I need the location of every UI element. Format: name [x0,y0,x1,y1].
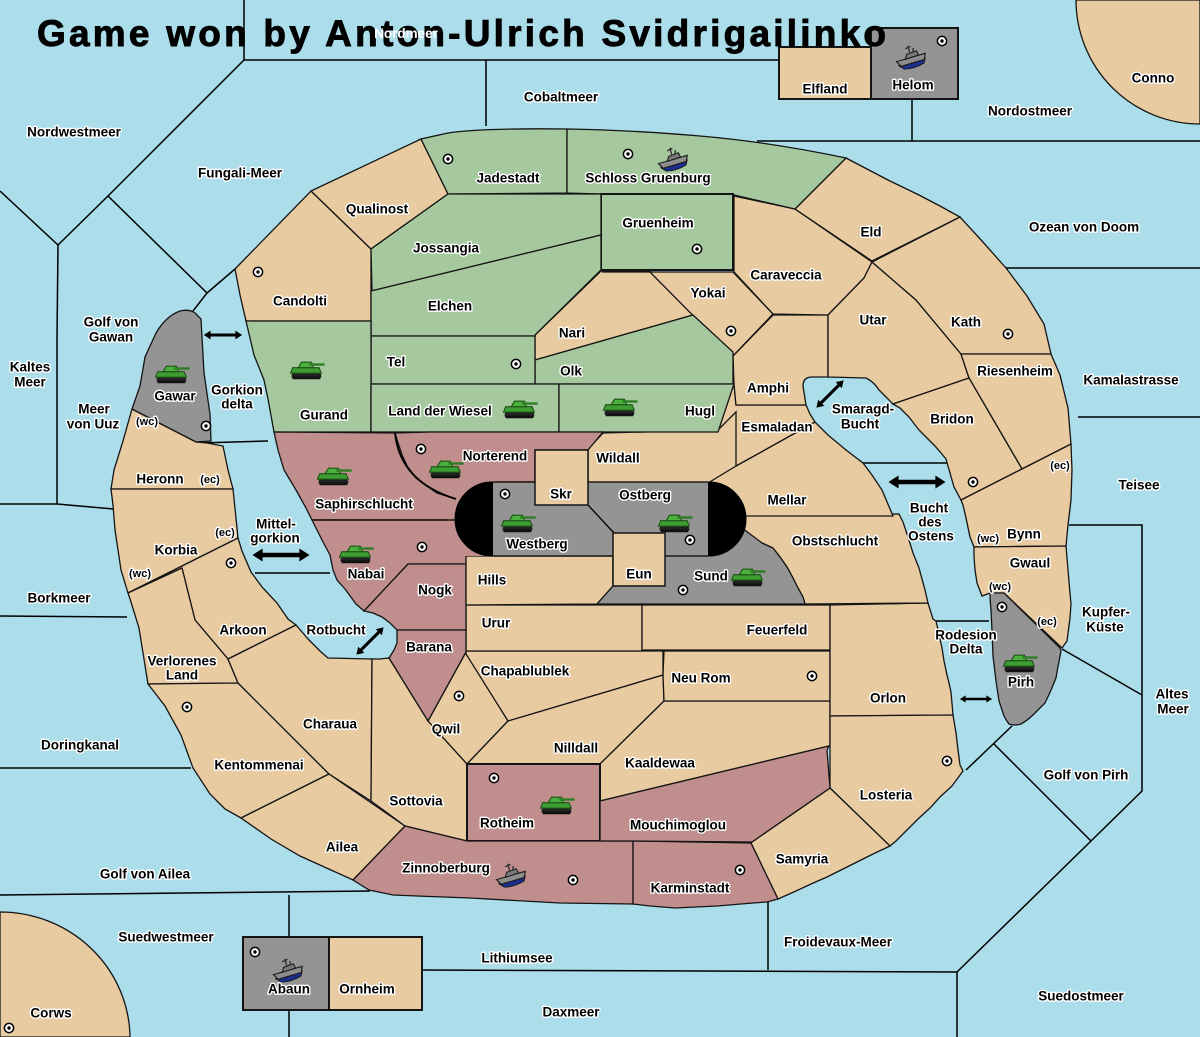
svg-text:Ailea: Ailea [326,840,359,855]
svg-text:Golf von: Golf von [84,315,139,330]
svg-text:Rodesion: Rodesion [935,628,997,643]
svg-text:Lithiumsee: Lithiumsee [481,951,553,966]
svg-text:Nari: Nari [559,326,585,341]
svg-text:Ostberg: Ostberg [619,488,671,503]
svg-text:Teisee: Teisee [1118,478,1160,493]
svg-text:von Uuz: von Uuz [67,417,120,432]
svg-text:Orlon: Orlon [870,691,906,706]
svg-text:delta: delta [221,397,253,412]
svg-text:Kentommenai: Kentommenai [214,758,303,773]
svg-text:Verlorenes: Verlorenes [147,654,216,669]
svg-text:Kamalastrasse: Kamalastrasse [1083,373,1179,388]
svg-text:Utar: Utar [859,313,887,328]
svg-text:(wc): (wc) [129,568,151,580]
svg-text:Wildall: Wildall [596,451,639,466]
svg-text:Gwaul: Gwaul [1010,556,1051,571]
svg-text:Jossangia: Jossangia [413,241,480,256]
svg-text:Meer: Meer [14,375,46,390]
svg-text:Schloss Gruenburg: Schloss Gruenburg [585,171,710,186]
svg-text:Cobaltmeer: Cobaltmeer [524,90,599,105]
svg-text:Ornheim: Ornheim [339,982,395,997]
svg-text:Obstschlucht: Obstschlucht [792,534,879,549]
svg-text:Kaaldewaa: Kaaldewaa [625,756,695,771]
svg-text:Gawan: Gawan [89,330,133,345]
svg-text:Bridon: Bridon [930,412,974,427]
svg-text:(wc): (wc) [977,533,999,545]
svg-text:Altes: Altes [1155,687,1188,702]
svg-text:Samyria: Samyria [776,852,829,867]
svg-text:Skr: Skr [550,487,573,502]
svg-text:Daxmeer: Daxmeer [542,1005,600,1020]
svg-text:Ozean von Doom: Ozean von Doom [1029,220,1139,235]
svg-text:Eld: Eld [860,225,881,240]
svg-text:Barana: Barana [406,640,452,655]
svg-text:Doringkanal: Doringkanal [41,738,119,753]
svg-text:Feuerfeld: Feuerfeld [747,623,808,638]
svg-text:Land: Land [166,668,198,683]
svg-text:Hugl: Hugl [685,404,715,419]
svg-text:Bynn: Bynn [1007,527,1041,542]
svg-text:Nilldall: Nilldall [554,741,598,756]
svg-text:Pirh: Pirh [1008,675,1034,690]
svg-text:Olk: Olk [560,364,582,379]
svg-text:Urur: Urur [482,616,511,631]
svg-text:Karminstadt: Karminstadt [651,881,730,896]
svg-text:(ec): (ec) [1050,460,1070,472]
svg-text:gorkion: gorkion [250,531,300,546]
svg-text:Meer: Meer [1157,702,1189,717]
svg-text:Candolti: Candolti [273,294,327,309]
svg-text:Qwil: Qwil [432,722,461,737]
svg-text:Losteria: Losteria [860,788,913,803]
svg-text:Golf von Ailea: Golf von Ailea [100,867,191,882]
svg-text:Smaragd-: Smaragd- [832,402,894,417]
svg-text:Riesenheim: Riesenheim [977,364,1053,379]
svg-text:Sottovia: Sottovia [389,794,443,809]
svg-text:Kaltes: Kaltes [10,360,51,375]
svg-text:Yokai: Yokai [690,286,725,301]
svg-text:Heronn: Heronn [136,472,183,487]
svg-text:Neu Rom: Neu Rom [671,671,730,686]
svg-text:(ec): (ec) [200,474,220,486]
svg-text:Caraveccia: Caraveccia [750,268,822,283]
svg-text:Corws: Corws [30,1006,71,1021]
svg-text:Zinnoberburg: Zinnoberburg [402,861,490,876]
svg-text:Amphi: Amphi [747,381,789,396]
svg-text:Nogk: Nogk [418,583,452,598]
svg-text:des: des [918,515,941,530]
svg-text:Gurand: Gurand [300,408,348,423]
svg-text:Meer: Meer [78,402,110,417]
svg-text:Mellar: Mellar [767,493,807,508]
svg-text:Bucht: Bucht [841,417,880,432]
svg-text:(wc): (wc) [136,416,158,428]
svg-text:Eun: Eun [626,567,652,582]
svg-text:Nabai: Nabai [348,567,385,582]
svg-text:Elchen: Elchen [428,299,472,314]
svg-text:(ec): (ec) [215,527,235,539]
svg-text:Sund: Sund [694,569,728,584]
svg-text:(wc): (wc) [989,581,1011,593]
svg-text:Gruenheim: Gruenheim [622,216,693,231]
svg-text:Chapablublek: Chapablublek [481,664,570,679]
svg-text:Charaua: Charaua [303,717,358,732]
svg-text:Bucht: Bucht [910,501,949,516]
svg-text:Suedostmeer: Suedostmeer [1038,989,1124,1004]
svg-text:Abaun: Abaun [268,982,310,997]
svg-text:Saphirschlucht: Saphirschlucht [315,497,413,512]
svg-text:Mittel-: Mittel- [256,517,296,532]
svg-text:Gorkion: Gorkion [211,383,263,398]
svg-text:Ostens: Ostens [908,529,954,544]
svg-text:Nordwestmeer: Nordwestmeer [27,125,122,140]
svg-text:Norterend: Norterend [463,449,528,464]
svg-text:Kath: Kath [951,315,981,330]
svg-text:Qualinost: Qualinost [346,202,409,217]
svg-text:Arkoon: Arkoon [219,623,266,638]
svg-text:(ec): (ec) [1037,616,1057,628]
svg-text:Tel: Tel [387,355,406,370]
svg-text:Westberg: Westberg [506,537,567,552]
svg-text:Borkmeer: Borkmeer [27,591,91,606]
svg-text:Elfland: Elfland [802,82,847,97]
svg-text:Esmaladan: Esmaladan [741,420,812,435]
svg-text:Land der Wiesel: Land der Wiesel [388,404,491,419]
svg-text:Kupfer-: Kupfer- [1082,605,1130,620]
svg-text:Suedwestmeer: Suedwestmeer [118,930,214,945]
svg-text:Conno: Conno [1132,71,1175,86]
svg-text:Delta: Delta [949,642,983,657]
svg-text:Nordostmeer: Nordostmeer [988,104,1073,119]
svg-text:Korbia: Korbia [155,543,198,558]
svg-text:Froidevaux-Meer: Froidevaux-Meer [784,935,893,950]
svg-text:Mouchimoglou: Mouchimoglou [630,818,726,833]
svg-text:Gawar: Gawar [154,389,196,404]
svg-text:Rotheim: Rotheim [480,816,534,831]
svg-text:Jadestadt: Jadestadt [476,171,540,186]
svg-text:Nordmeer: Nordmeer [374,26,439,41]
svg-text:Rotbucht: Rotbucht [306,623,366,638]
svg-text:Küste: Küste [1086,620,1124,635]
svg-text:Helom: Helom [892,78,933,93]
svg-text:Hills: Hills [478,573,507,588]
svg-text:Golf von Pirh: Golf von Pirh [1044,768,1129,783]
svg-text:Fungali-Meer: Fungali-Meer [198,166,283,181]
